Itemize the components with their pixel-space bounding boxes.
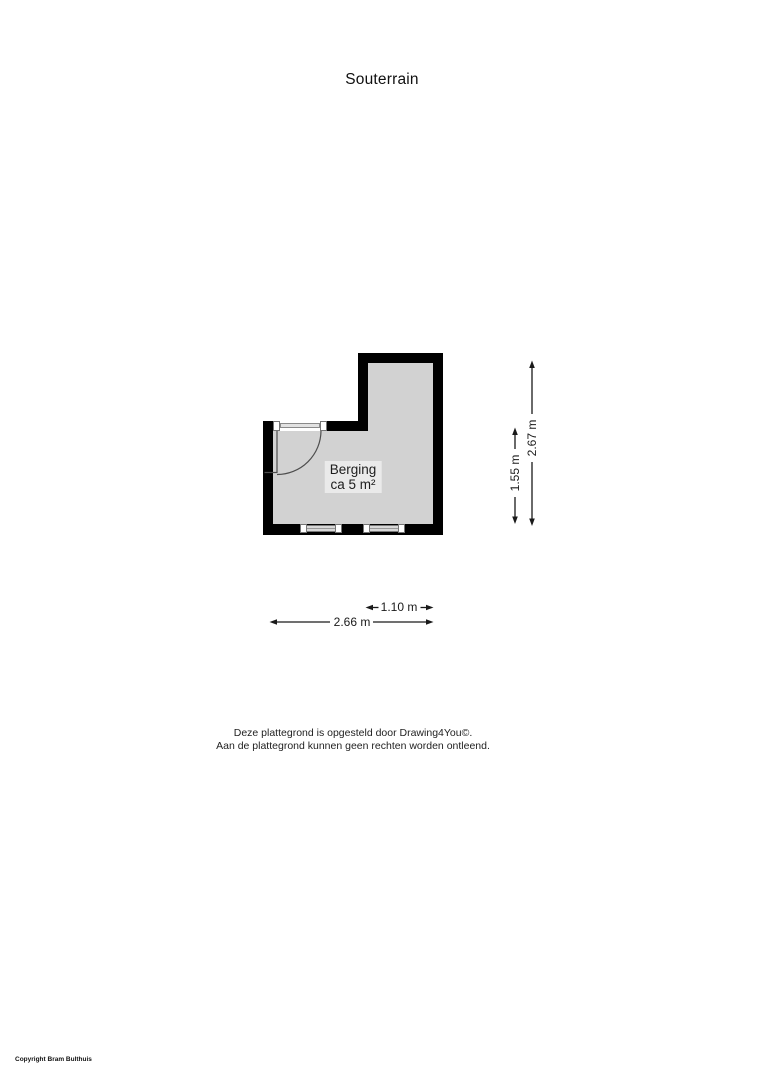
dimension-label-width-total: 2.66 m bbox=[334, 615, 371, 629]
footer-line2: Aan de plattegrond kunnen geen rechten w… bbox=[216, 740, 490, 753]
dimension-label-height-total: 2.67 m bbox=[525, 420, 539, 457]
door-post-right bbox=[320, 421, 327, 431]
footer-disclaimer: Deze plattegrond is opgesteld door Drawi… bbox=[216, 727, 490, 752]
window2-post-right bbox=[398, 524, 405, 533]
window1-glass bbox=[306, 525, 336, 532]
window2-glass bbox=[369, 525, 399, 532]
door-post-left bbox=[273, 421, 280, 431]
page-title: Souterrain bbox=[0, 71, 764, 89]
footer-line1: Deze plattegrond is opgesteld door Drawi… bbox=[216, 727, 490, 740]
copyright-notice: Copyright Bram Bulthuis bbox=[15, 1056, 92, 1063]
floorplan-page: Souterrain Berging ca 5 m² bbox=[0, 0, 764, 1080]
door-threshold bbox=[280, 423, 320, 428]
plan-overlay bbox=[0, 0, 764, 1080]
room-name: Berging bbox=[330, 462, 377, 477]
dimension-label-height-lower: 1.55 m bbox=[508, 455, 522, 492]
room-label: Berging ca 5 m² bbox=[325, 461, 382, 493]
room-area: ca 5 m² bbox=[330, 477, 377, 492]
dimension-label-width-upper: 1.10 m bbox=[381, 600, 418, 614]
window1-post-right bbox=[335, 524, 342, 533]
